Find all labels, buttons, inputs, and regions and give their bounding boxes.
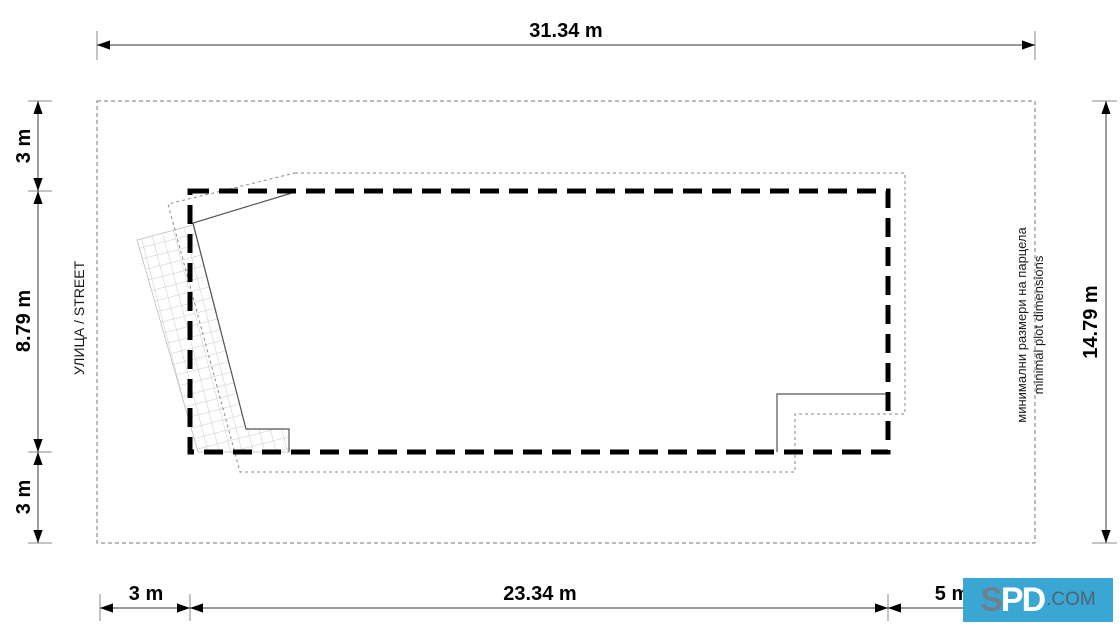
dim-label-left-middle: 8.79 m [13, 290, 35, 352]
dim-label-left-bottom: 3 m [13, 480, 35, 514]
watermark-logo: SPD.COM [963, 578, 1113, 622]
watermark-letter-s: S [980, 578, 1001, 622]
dim-label-bottom-left: 3 m [129, 583, 163, 605]
dim-label-left-top: 3 m [13, 129, 35, 163]
dim-label-top: 31.34 m [529, 20, 602, 42]
plan-canvas: 31.34 m 3 m 8.79 m 3 m 14.79 m 3 m 23.34… [0, 0, 1120, 632]
building-envelope [190, 191, 888, 452]
dim-label-bottom-middle: 23.34 m [503, 583, 576, 605]
eaves-outline [168, 173, 905, 472]
watermark-suffix: .COM [1046, 578, 1096, 622]
note-label-en: minimal plot dimensions [1031, 255, 1046, 394]
street-label: УЛИЦА / STREET [71, 260, 87, 375]
watermark-letters-pd: PD [1001, 578, 1044, 622]
plot-boundary [97, 101, 1035, 543]
site-plan-diagram: 31.34 m 3 m 8.79 m 3 m 14.79 m 3 m 23.34… [0, 0, 1120, 632]
note-label-bg: минимални размери на парцела [1014, 227, 1029, 423]
hatch-area [137, 225, 289, 452]
dim-label-right: 14.79 m [1080, 285, 1102, 358]
house-outline-right [777, 394, 888, 452]
